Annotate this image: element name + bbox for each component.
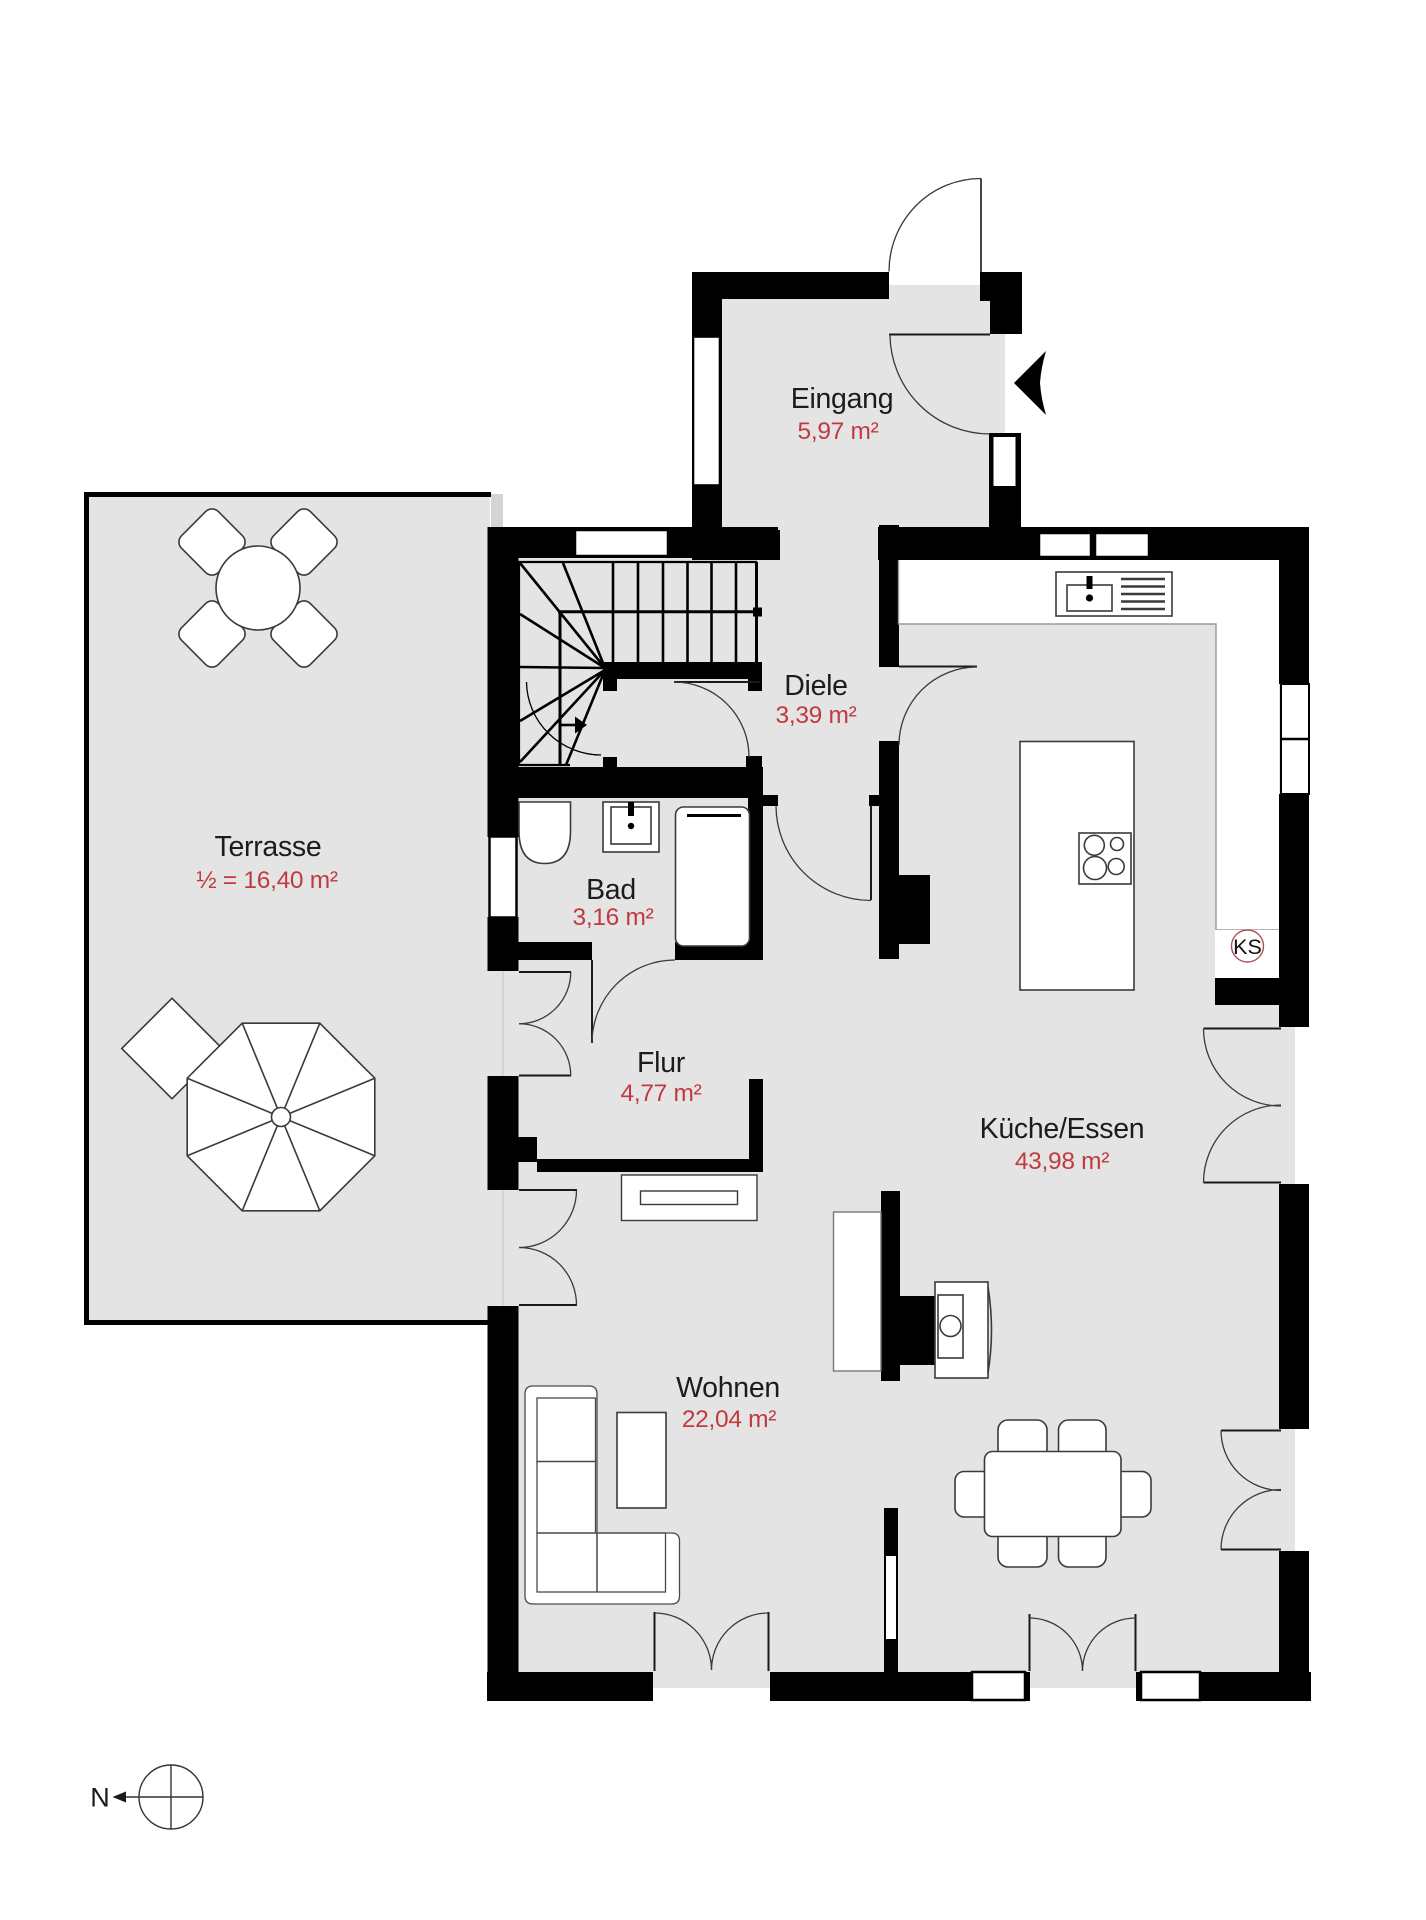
svg-text:Wohnen: Wohnen	[676, 1372, 780, 1404]
svg-text:Flur: Flur	[637, 1047, 686, 1079]
svg-text:43,98 m²: 43,98 m²	[1015, 1148, 1109, 1175]
svg-text:Eingang: Eingang	[791, 383, 894, 415]
svg-text:Bad: Bad	[586, 874, 636, 906]
svg-text:Küche/Essen: Küche/Essen	[980, 1113, 1145, 1145]
svg-text:N: N	[90, 1783, 110, 1813]
svg-text:5,97 m²: 5,97 m²	[798, 418, 879, 445]
svg-text:Diele: Diele	[784, 670, 847, 702]
svg-text:KS: KS	[1233, 935, 1262, 959]
svg-text:½ = 16,40 m²: ½ = 16,40 m²	[196, 867, 338, 894]
svg-text:4,77 m²: 4,77 m²	[621, 1080, 702, 1107]
svg-text:Terrasse: Terrasse	[215, 831, 322, 863]
svg-text:3,39 m²: 3,39 m²	[776, 702, 857, 729]
svg-text:22,04 m²: 22,04 m²	[682, 1406, 776, 1433]
svg-text:3,16 m²: 3,16 m²	[573, 904, 654, 931]
